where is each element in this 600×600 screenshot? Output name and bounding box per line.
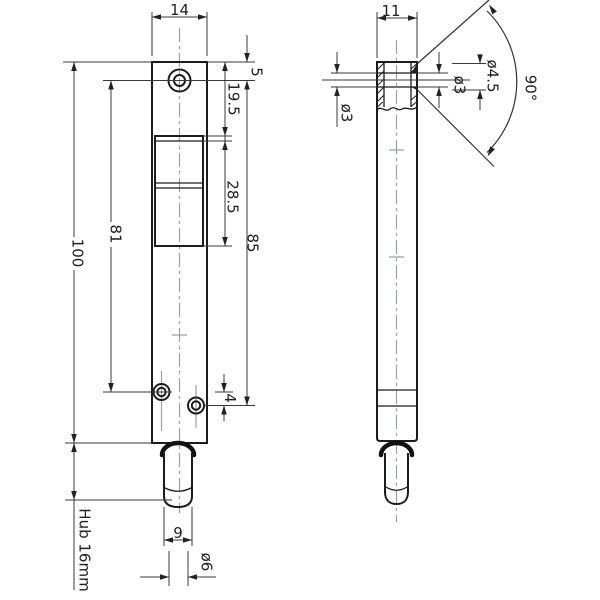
label-gap-4: 4 — [221, 393, 239, 403]
fan-line-upper — [418, 0, 490, 64]
label-offset-5: 5 — [248, 67, 266, 77]
front-pin-chamfer — [164, 488, 192, 492]
countersink-bore-walls — [384, 63, 411, 107]
label-width-14: 14 — [170, 1, 189, 19]
dimension-labels: 14 11 9 5 19.5 28.5 85 81 100 4 Hub 16mm… — [69, 1, 540, 592]
label-angle-90: 90° — [522, 75, 540, 102]
label-dia-4-5: ø4.5 — [484, 59, 502, 92]
label-pin-width-9: 9 — [173, 524, 183, 542]
dimension-lines — [74, 17, 480, 590]
hatch-left-band — [378, 63, 384, 107]
fan-line-lower — [418, 90, 495, 167]
label-width-11: 11 — [381, 2, 400, 20]
front-pin-body — [164, 453, 192, 497]
technical-drawing: 14 11 9 5 19.5 28.5 85 81 100 4 Hub 16mm… — [0, 0, 600, 600]
label-hub-16mm: Hub 16mm — [76, 508, 94, 591]
arrowheads — [71, 14, 483, 580]
label-dia-6: ø6 — [198, 553, 216, 572]
front-pin-tip — [164, 496, 192, 507]
label-81: 81 — [107, 224, 125, 243]
extension-lines — [63, 12, 486, 586]
label-85: 85 — [244, 233, 262, 252]
ext-pin-dia6 — [169, 551, 188, 586]
drawing-canvas: 14 11 9 5 19.5 28.5 85 81 100 4 Hub 16mm… — [0, 0, 600, 600]
arc-arrow-top — [489, 5, 497, 15]
label-dia-3-right: ø3 — [451, 76, 469, 95]
label-19-5: 19.5 — [225, 82, 243, 115]
label-100: 100 — [69, 239, 87, 268]
side-pin-chamfer — [385, 487, 408, 491]
label-28-5: 28.5 — [224, 180, 242, 213]
label-dia-3-left: ø3 — [338, 104, 356, 123]
centerlines — [162, 28, 405, 522]
front-pin-dome — [162, 443, 194, 455]
